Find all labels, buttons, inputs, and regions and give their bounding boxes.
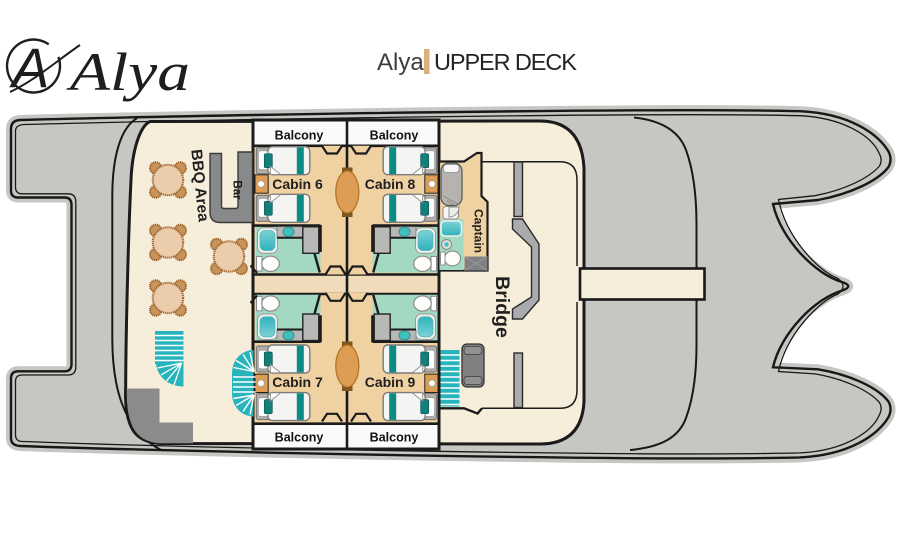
- svg-text:Balcony: Balcony: [275, 129, 324, 143]
- svg-text:Cabin 9: Cabin 9: [365, 374, 416, 390]
- svg-text:Bar: Bar: [231, 180, 243, 200]
- svg-text:Alya: Alya: [66, 42, 190, 102]
- svg-text:Balcony: Balcony: [275, 431, 324, 445]
- svg-text:Balcony: Balcony: [370, 129, 419, 143]
- svg-text:UPPER DECK: UPPER DECK: [434, 49, 577, 75]
- svg-text:Captain: Captain: [472, 209, 486, 253]
- svg-text:Balcony: Balcony: [370, 431, 419, 445]
- svg-text:Bridge: Bridge: [491, 276, 513, 338]
- svg-text:Cabin 6: Cabin 6: [272, 176, 323, 192]
- svg-text:Alya: Alya: [377, 49, 424, 76]
- svg-text:Cabin 8: Cabin 8: [365, 176, 416, 192]
- svg-text:Cabin 7: Cabin 7: [272, 374, 323, 390]
